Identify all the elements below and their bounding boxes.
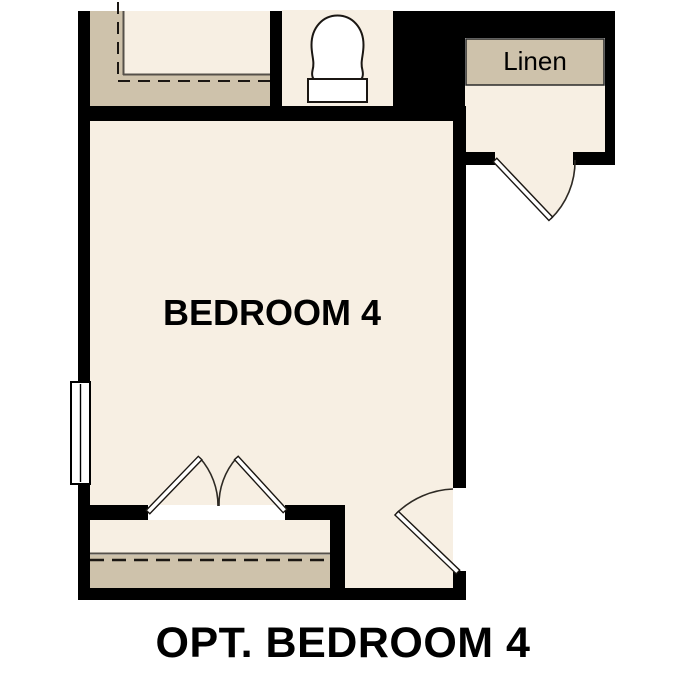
floor-plan-page: Linen BEDROOM 4 OPT. BEDROOM 4 xyxy=(0,0,687,687)
toilet-tank xyxy=(308,79,367,102)
wall-block-top-right xyxy=(393,11,465,121)
floor-plan: Linen BEDROOM 4 OPT. BEDROOM 4 xyxy=(0,0,687,687)
window-icon xyxy=(71,382,90,484)
toilet-bowl xyxy=(312,16,364,81)
upper-closet-floor xyxy=(124,11,270,75)
toilet-icon xyxy=(308,16,367,103)
wall-bottom xyxy=(78,588,466,600)
bedroom-label: BEDROOM 4 xyxy=(163,292,381,333)
linen-label: Linen xyxy=(503,46,567,76)
bottom-closet-floor xyxy=(90,520,330,555)
wall-linen-right xyxy=(605,38,615,165)
wall-bedroom-right xyxy=(453,121,466,488)
linen-closet-floor xyxy=(465,85,605,152)
wall-linen-top xyxy=(465,11,615,38)
wall-linen-door-jamb-left xyxy=(465,152,495,165)
plan-caption: OPT. BEDROOM 4 xyxy=(156,619,531,667)
wall-bottom-closet-right xyxy=(330,505,345,600)
wall-linen-door-jamb-right xyxy=(573,152,615,165)
wall-double-door-stub-left xyxy=(78,505,148,520)
wall-entry-door-stub xyxy=(453,571,466,590)
wall-closet-alcove-divider xyxy=(270,11,282,121)
